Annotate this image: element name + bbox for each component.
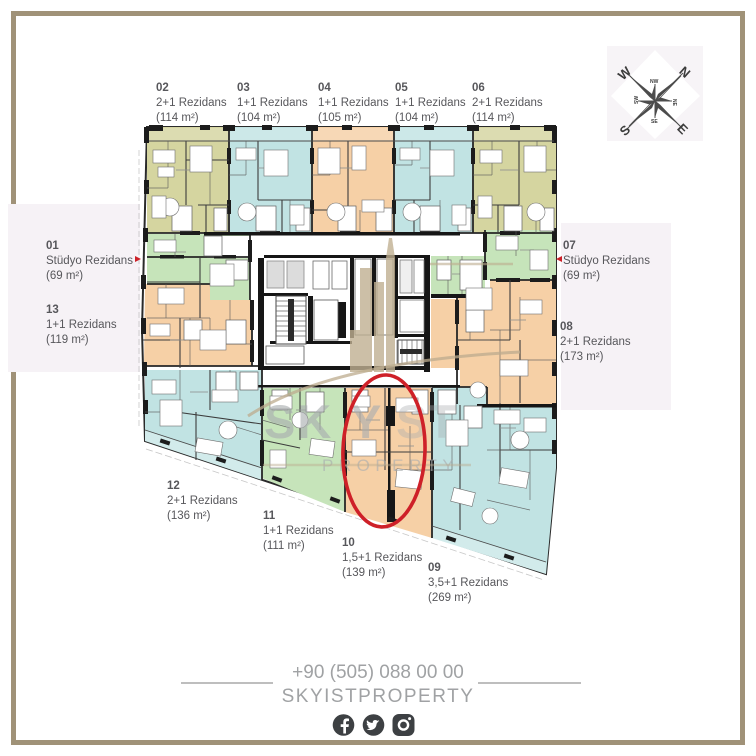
svg-text:(269 m²): (269 m²) [428, 592, 472, 604]
svg-text:(139 m²): (139 m²) [342, 567, 386, 579]
svg-text:12: 12 [167, 480, 180, 492]
svg-text:(104 m²): (104 m²) [395, 112, 439, 124]
svg-text:1+1 Rezidans: 1+1 Rezidans [395, 97, 466, 109]
svg-text:01: 01 [46, 240, 59, 252]
svg-text:(114 m²): (114 m²) [156, 112, 199, 124]
svg-text:13: 13 [46, 304, 59, 316]
svg-text:2+1 Rezidans: 2+1 Rezidans [156, 97, 227, 109]
svg-text:2+1 Rezidans: 2+1 Rezidans [560, 336, 631, 348]
svg-text:2+1 Rezidans: 2+1 Rezidans [167, 495, 238, 507]
svg-text:2+1 Rezidans: 2+1 Rezidans [472, 97, 543, 109]
svg-text:+90 (505) 088 00 00: +90 (505) 088 00 00 [292, 662, 464, 683]
svg-text:1+1 Rezidans: 1+1 Rezidans [263, 525, 334, 537]
svg-text:08: 08 [560, 321, 573, 333]
svg-text:SE: SE [651, 119, 658, 125]
svg-text:(105 m²): (105 m²) [318, 112, 362, 124]
svg-text:03: 03 [237, 82, 250, 94]
svg-text:(104 m²): (104 m²) [237, 112, 281, 124]
svg-text:06: 06 [472, 82, 485, 94]
svg-text:(111 m²): (111 m²) [263, 540, 305, 552]
svg-text:10: 10 [342, 537, 355, 549]
svg-text:SK: SK [264, 395, 333, 448]
svg-text:(136 m²): (136 m²) [167, 510, 211, 522]
svg-text:3,5+1 Rezidans: 3,5+1 Rezidans [428, 577, 508, 589]
svg-text:1+1 Rezidans: 1+1 Rezidans [46, 319, 117, 331]
svg-text:02: 02 [156, 82, 169, 94]
svg-text:11: 11 [263, 510, 276, 522]
svg-text:SW: SW [634, 96, 640, 104]
svg-text:09: 09 [428, 562, 441, 574]
svg-text:1+1 Rezidans: 1+1 Rezidans [318, 97, 389, 109]
svg-text:NW: NW [650, 79, 659, 85]
svg-text:05: 05 [395, 82, 408, 94]
svg-text:(119 m²): (119 m²) [46, 334, 89, 346]
svg-text:(69 m²): (69 m²) [46, 270, 83, 282]
svg-text:Stüdyo Rezidans: Stüdyo Rezidans [563, 255, 650, 267]
svg-text:(69 m²): (69 m²) [563, 270, 600, 282]
svg-text:07: 07 [563, 240, 576, 252]
svg-text:(173 m²): (173 m²) [560, 351, 604, 363]
svg-text:Stüdyo Rezidans: Stüdyo Rezidans [46, 255, 133, 267]
svg-text:SKYISTPROPERTY: SKYISTPROPERTY [282, 686, 475, 707]
svg-text:(114 m²): (114 m²) [472, 112, 515, 124]
svg-text:1,5+1 Rezidans: 1,5+1 Rezidans [342, 552, 422, 564]
svg-text:NE: NE [671, 99, 677, 107]
svg-text:04: 04 [318, 82, 331, 94]
svg-text:1+1 Rezidans: 1+1 Rezidans [237, 97, 308, 109]
